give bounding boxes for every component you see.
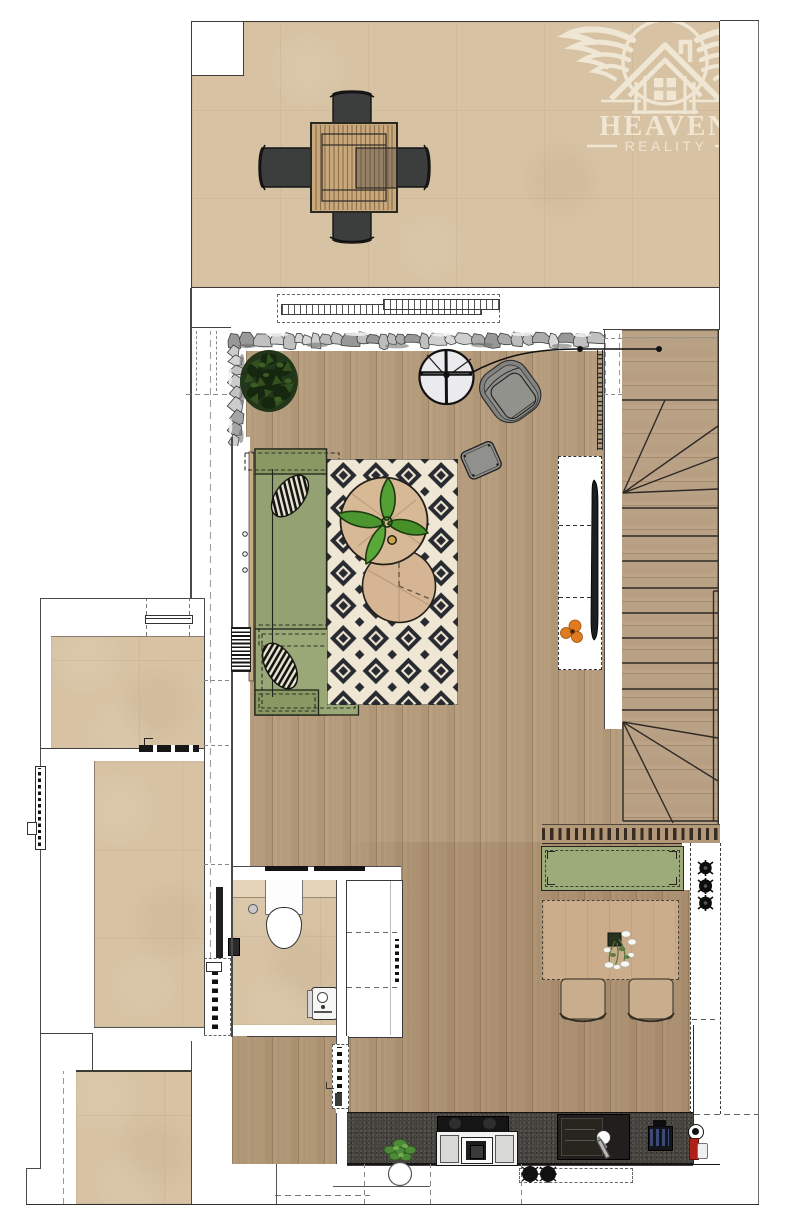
svg-text:REALITY: REALITY [625,138,708,154]
